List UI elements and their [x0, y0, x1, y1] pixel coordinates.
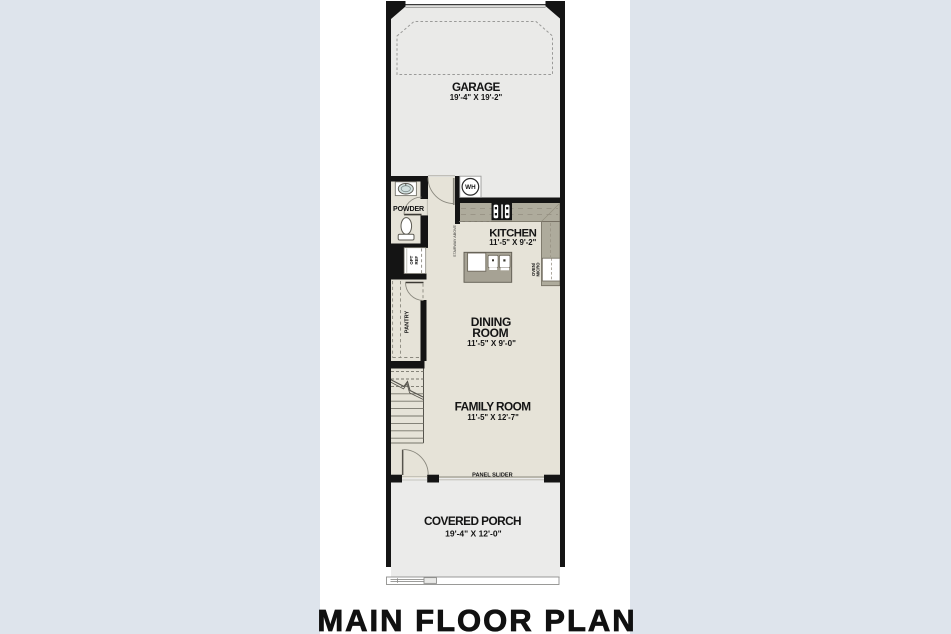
svg-text:STAIRWAY ABOVE: STAIRWAY ABOVE [453, 224, 457, 257]
svg-text:11'-5" X 9'-0": 11'-5" X 9'-0" [467, 339, 516, 348]
svg-text:19'-4" X 12'-0": 19'-4" X 12'-0" [445, 529, 502, 539]
svg-text:11'-5" X 9'-2": 11'-5" X 9'-2" [489, 238, 536, 247]
svg-text:FAMILY ROOM: FAMILY ROOM [455, 400, 532, 414]
svg-text:MICRO: MICRO [536, 262, 541, 277]
svg-text:WH: WH [465, 184, 476, 191]
svg-text:PANEL SLIDER: PANEL SLIDER [472, 472, 513, 478]
svg-text:11'-5" X 12'-7": 11'-5" X 12'-7" [467, 413, 519, 422]
svg-text:COVERED PORCH: COVERED PORCH [424, 514, 521, 528]
svg-text:PANTRY: PANTRY [405, 311, 411, 334]
svg-text:POWDER: POWDER [393, 205, 424, 213]
svg-text:REF: REF [414, 256, 419, 265]
svg-text:19'-4" X 19'-2": 19'-4" X 19'-2" [450, 93, 503, 102]
svg-text:MAIN FLOOR PLAN: MAIN FLOOR PLAN [317, 603, 636, 634]
svg-text:ROOM: ROOM [472, 326, 508, 340]
